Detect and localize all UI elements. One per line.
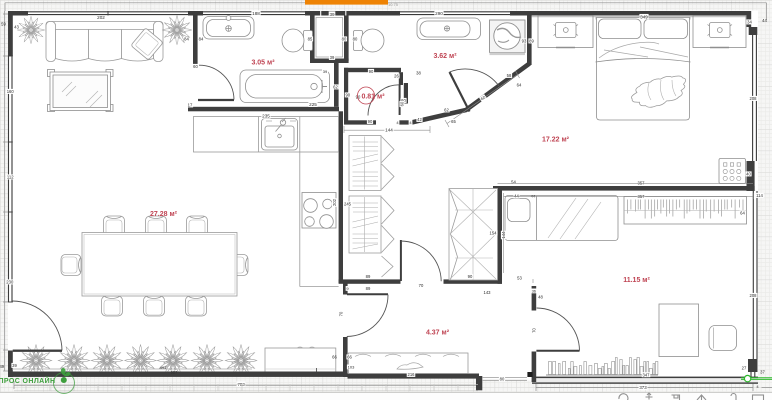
svg-text:89: 89 (529, 39, 534, 44)
svg-text:60: 60 (400, 101, 405, 106)
svg-text:93: 93 (522, 39, 527, 44)
svg-text:114: 114 (756, 193, 763, 198)
svg-text:373: 373 (639, 385, 647, 390)
svg-text:62: 62 (444, 108, 449, 113)
svg-text:44: 44 (762, 18, 767, 23)
svg-text:235: 235 (262, 114, 270, 119)
svg-text:11.15 м²: 11.15 м² (623, 277, 650, 284)
svg-text:27.28 м²: 27.28 м² (150, 211, 178, 218)
svg-text:49: 49 (0, 364, 5, 369)
svg-text:43: 43 (14, 25, 19, 30)
svg-text:112: 112 (7, 175, 14, 180)
svg-text:103: 103 (348, 364, 355, 369)
svg-text:84: 84 (199, 37, 204, 42)
svg-text:494: 494 (160, 365, 167, 370)
svg-text:54: 54 (511, 180, 516, 185)
svg-text:208: 208 (750, 293, 758, 298)
svg-text:3.05 м²: 3.05 м² (251, 60, 275, 67)
svg-text:90: 90 (369, 69, 374, 74)
svg-text:160: 160 (7, 89, 15, 94)
svg-text:230: 230 (6, 280, 14, 285)
svg-text:48: 48 (538, 295, 543, 300)
svg-text:39: 39 (12, 363, 17, 368)
svg-text:64: 64 (740, 211, 745, 216)
svg-text:34: 34 (747, 20, 752, 25)
svg-text:42: 42 (417, 117, 422, 122)
svg-text:627: 627 (171, 370, 178, 375)
svg-text:80: 80 (353, 37, 358, 42)
svg-text:0.81 м²: 0.81 м² (361, 93, 385, 100)
svg-text:39: 39 (330, 55, 335, 60)
svg-text:188: 188 (252, 11, 260, 16)
svg-text:89: 89 (366, 286, 371, 291)
svg-text:144: 144 (385, 128, 393, 133)
svg-text:60: 60 (193, 64, 198, 69)
svg-text:245: 245 (344, 202, 352, 207)
svg-text:62: 62 (333, 85, 338, 90)
svg-text:53: 53 (517, 276, 522, 281)
svg-text:59: 59 (1, 22, 6, 27)
svg-text:70: 70 (531, 328, 536, 333)
svg-text:90: 90 (368, 119, 373, 124)
svg-text:216: 216 (408, 372, 416, 377)
svg-text:143: 143 (484, 290, 492, 295)
svg-text:347: 347 (643, 372, 651, 377)
svg-text:70: 70 (419, 283, 424, 288)
svg-text:90: 90 (468, 274, 473, 279)
svg-text:154: 154 (490, 231, 498, 236)
svg-text:38: 38 (416, 71, 421, 76)
svg-text:85: 85 (308, 37, 313, 42)
svg-text:80: 80 (500, 377, 505, 382)
svg-text:39: 39 (329, 12, 335, 17)
svg-text:66: 66 (332, 355, 337, 360)
svg-text:4.37 м²: 4.37 м² (426, 330, 450, 337)
svg-text:26: 26 (394, 74, 399, 79)
svg-text:3.62 м²: 3.62 м² (433, 53, 457, 60)
svg-text:10.75: 10.75 (388, 2, 399, 7)
svg-text:40: 40 (746, 172, 751, 177)
svg-text:70: 70 (339, 311, 344, 316)
svg-text:ПРОС ОНЛАЙН: ПРОС ОНЛАЙН (0, 376, 56, 385)
svg-text:39: 39 (323, 69, 328, 74)
svg-text:84: 84 (184, 37, 189, 42)
svg-text:66: 66 (347, 355, 352, 360)
svg-text:64: 64 (517, 83, 522, 88)
svg-text:37: 37 (760, 370, 765, 375)
svg-text:17: 17 (188, 103, 193, 108)
svg-text:225: 225 (309, 102, 317, 107)
svg-text:90: 90 (345, 93, 350, 98)
svg-text:27: 27 (742, 366, 747, 371)
svg-text:17.22 м²: 17.22 м² (542, 137, 570, 144)
svg-text:80: 80 (342, 37, 347, 42)
svg-text:202: 202 (97, 15, 105, 20)
svg-text:290: 290 (435, 11, 443, 16)
svg-text:36: 36 (532, 288, 537, 293)
svg-text:58: 58 (507, 73, 512, 78)
svg-text:44: 44 (514, 194, 519, 199)
svg-text:208: 208 (750, 96, 758, 101)
svg-text:202: 202 (332, 198, 337, 206)
svg-text:65: 65 (451, 119, 456, 124)
svg-text:89: 89 (366, 274, 371, 279)
